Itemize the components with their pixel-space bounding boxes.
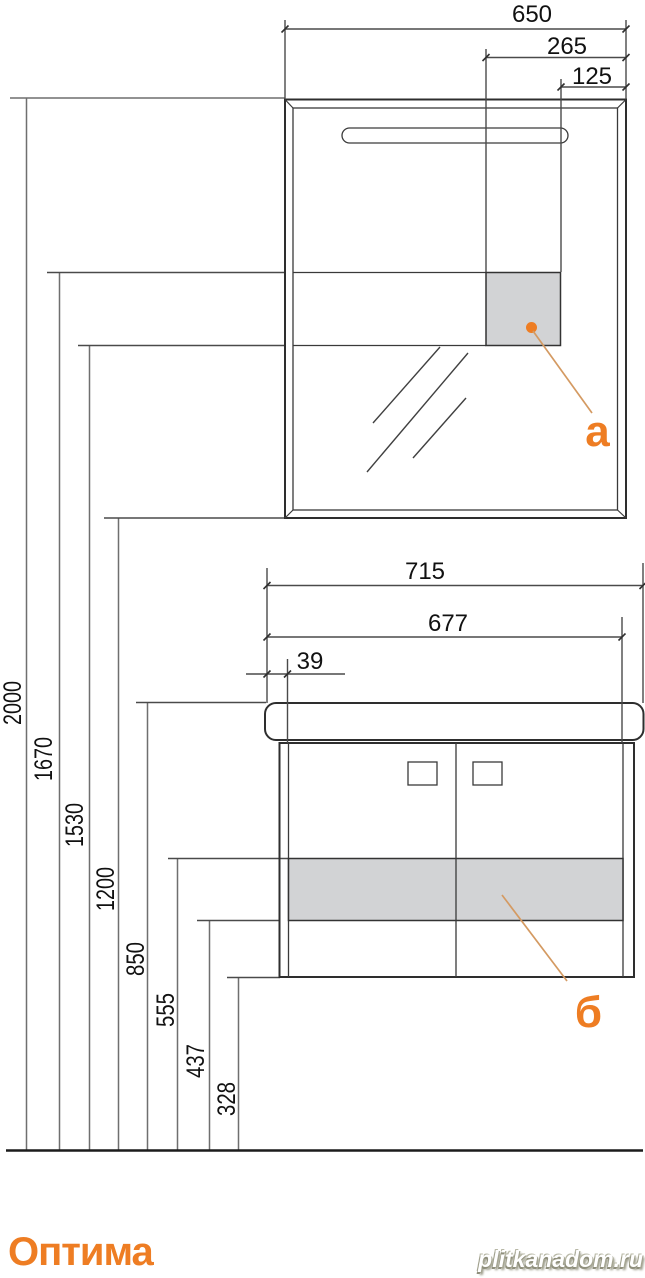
mirror-glass-hatch xyxy=(367,347,468,472)
mirror-cabinet xyxy=(285,100,626,519)
vanity-width-dimensions: 715 677 39 xyxy=(246,558,645,743)
dim-label-265: 265 xyxy=(547,33,587,60)
dim-label-650: 650 xyxy=(512,1,552,28)
callout-a-leader-line xyxy=(533,331,592,413)
dim-label-328: 328 xyxy=(213,1082,241,1116)
dim-label-850: 850 xyxy=(122,942,150,976)
mirror-cabinet-outline xyxy=(285,100,626,519)
watermark-text: plitkanadom.ru xyxy=(478,1246,643,1273)
dim-label-2000: 2000 xyxy=(0,681,27,725)
lamp xyxy=(342,128,568,143)
frame-bevel-top-right xyxy=(618,100,627,109)
storage-box-a xyxy=(486,273,561,346)
countertop xyxy=(265,703,644,740)
dim-label-125: 125 xyxy=(572,63,612,90)
frame-bevel-top-left xyxy=(285,100,293,109)
dim-label-437: 437 xyxy=(182,1044,210,1078)
dim-label-1670: 1670 xyxy=(30,737,58,781)
mirror-cabinet-width-dimensions: 650 265 125 xyxy=(282,1,630,272)
dim-label-715: 715 xyxy=(405,558,445,585)
mirror-cabinet-inner-frame xyxy=(293,108,618,510)
vanity-unit xyxy=(265,703,644,977)
dim-label-1200: 1200 xyxy=(92,867,120,911)
height-dimension-lines xyxy=(10,98,289,1150)
product-title: Оптима xyxy=(8,1231,153,1273)
height-dimension-labels: 2000 1670 1530 1200 850 555 437 328 xyxy=(0,681,241,1116)
glass-hatch-line xyxy=(413,398,466,458)
door-handle-left xyxy=(408,762,437,785)
glass-hatch-line xyxy=(373,347,440,423)
callout-a-dot xyxy=(526,322,537,333)
product-dimension-diagram: 2000 1670 1530 1200 850 555 437 328 xyxy=(0,0,645,1278)
door-handle-right xyxy=(473,762,502,785)
callout-b-label: б xyxy=(575,988,602,1037)
dim-label-1530: 1530 xyxy=(61,803,89,847)
drawing-canvas: 2000 1670 1530 1200 850 555 437 328 xyxy=(0,0,645,1278)
dim-label-555: 555 xyxy=(152,993,180,1027)
callout-a-label: а xyxy=(585,407,610,456)
frame-bevel-bottom-right xyxy=(618,510,627,518)
frame-bevel-bottom-left xyxy=(285,510,293,518)
dim-label-677: 677 xyxy=(428,610,468,637)
dim-label-39: 39 xyxy=(297,648,324,675)
